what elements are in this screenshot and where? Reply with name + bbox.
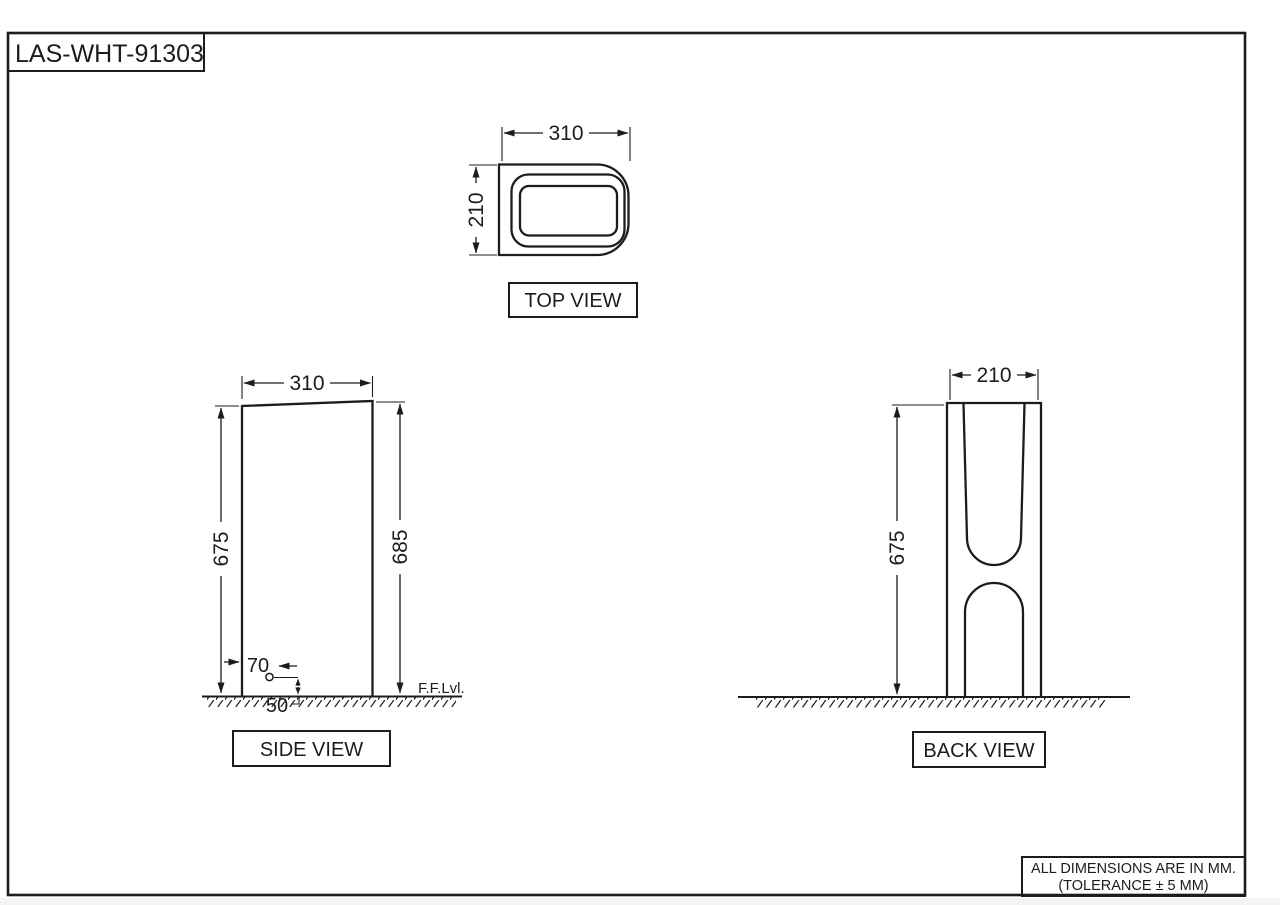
back-view-width-value: 210 [976,364,1011,387]
drawing-sheet: LAS-WHT-91303 310 210 TOP VIEW F.F.Lvl. [0,0,1280,905]
note-line-2: (TOLERANCE ± 5 MM) [1058,878,1208,894]
back-view-label: BACK VIEW [923,740,1034,762]
page-border [8,33,1245,895]
side-view-height-left-value: 675 [210,531,233,566]
sheet-edge-shadow [0,898,1280,905]
hole-offset-value: 70 [247,655,269,677]
top-view-depth-value: 210 [465,192,488,227]
side-view-width-value: 310 [289,372,324,395]
top-view-label: TOP VIEW [524,290,621,312]
back-view-lower-arch [965,583,1023,696]
side-view-label-box: SIDE VIEW [233,731,390,766]
product-code: LAS-WHT-91303 [15,40,204,68]
technical-drawing-canvas: LAS-WHT-91303 310 210 TOP VIEW F.F.Lvl. [0,0,1280,905]
note-line-1: ALL DIMENSIONS ARE IN MM. [1031,861,1236,877]
back-view: 210 675 BACK VIEW [738,364,1130,767]
mounting-hole [266,673,273,680]
ground-hatch-side [207,698,456,708]
side-view: F.F.Lvl. 310 675 685 70 50 SIDE VIEW [202,372,465,766]
back-view-label-box: BACK VIEW [913,732,1045,767]
floor-level-label: F.F.Lvl. [418,680,465,697]
top-view-label-box: TOP VIEW [509,283,637,317]
top-view-width-value: 310 [548,122,583,145]
title-block: LAS-WHT-91303 [8,33,204,71]
side-view-label: SIDE VIEW [260,739,363,761]
back-view-outline [947,403,1041,696]
dimension-note-box: ALL DIMENSIONS ARE IN MM. (TOLERANCE ± 5… [1022,857,1245,896]
back-view-upper-cutout [964,404,1025,565]
top-view: 310 210 TOP VIEW [465,122,637,317]
hole-height-value: 50 [266,695,288,717]
ground-hatch-back [756,698,1105,708]
side-view-height-right-value: 685 [389,529,412,564]
back-view-height-value: 675 [886,530,909,565]
top-view-basin [520,186,617,236]
side-view-outline [242,401,373,696]
